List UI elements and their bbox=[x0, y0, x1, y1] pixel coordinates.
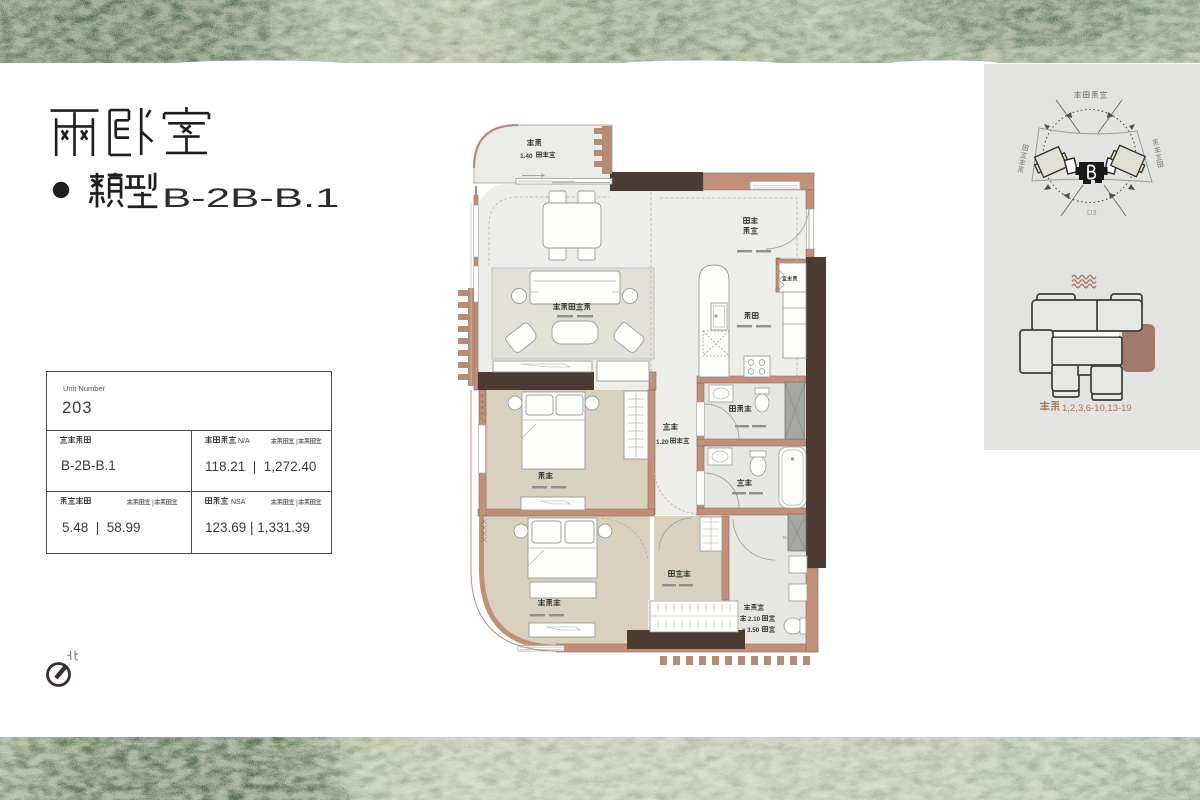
svg-text:1.40: 1.40 bbox=[520, 153, 533, 160]
svg-text:x 3.50: x 3.50 bbox=[742, 627, 760, 634]
svg-text:G+: G+ bbox=[783, 535, 790, 540]
svg-text:1.20: 1.20 bbox=[656, 439, 669, 446]
svg-text:1,2,3,6-10,13-19: 1,2,3,6-10,13-19 bbox=[1062, 403, 1132, 414]
svg-text:2.10: 2.10 bbox=[748, 616, 761, 623]
svg-text:D3: D3 bbox=[1087, 208, 1097, 217]
